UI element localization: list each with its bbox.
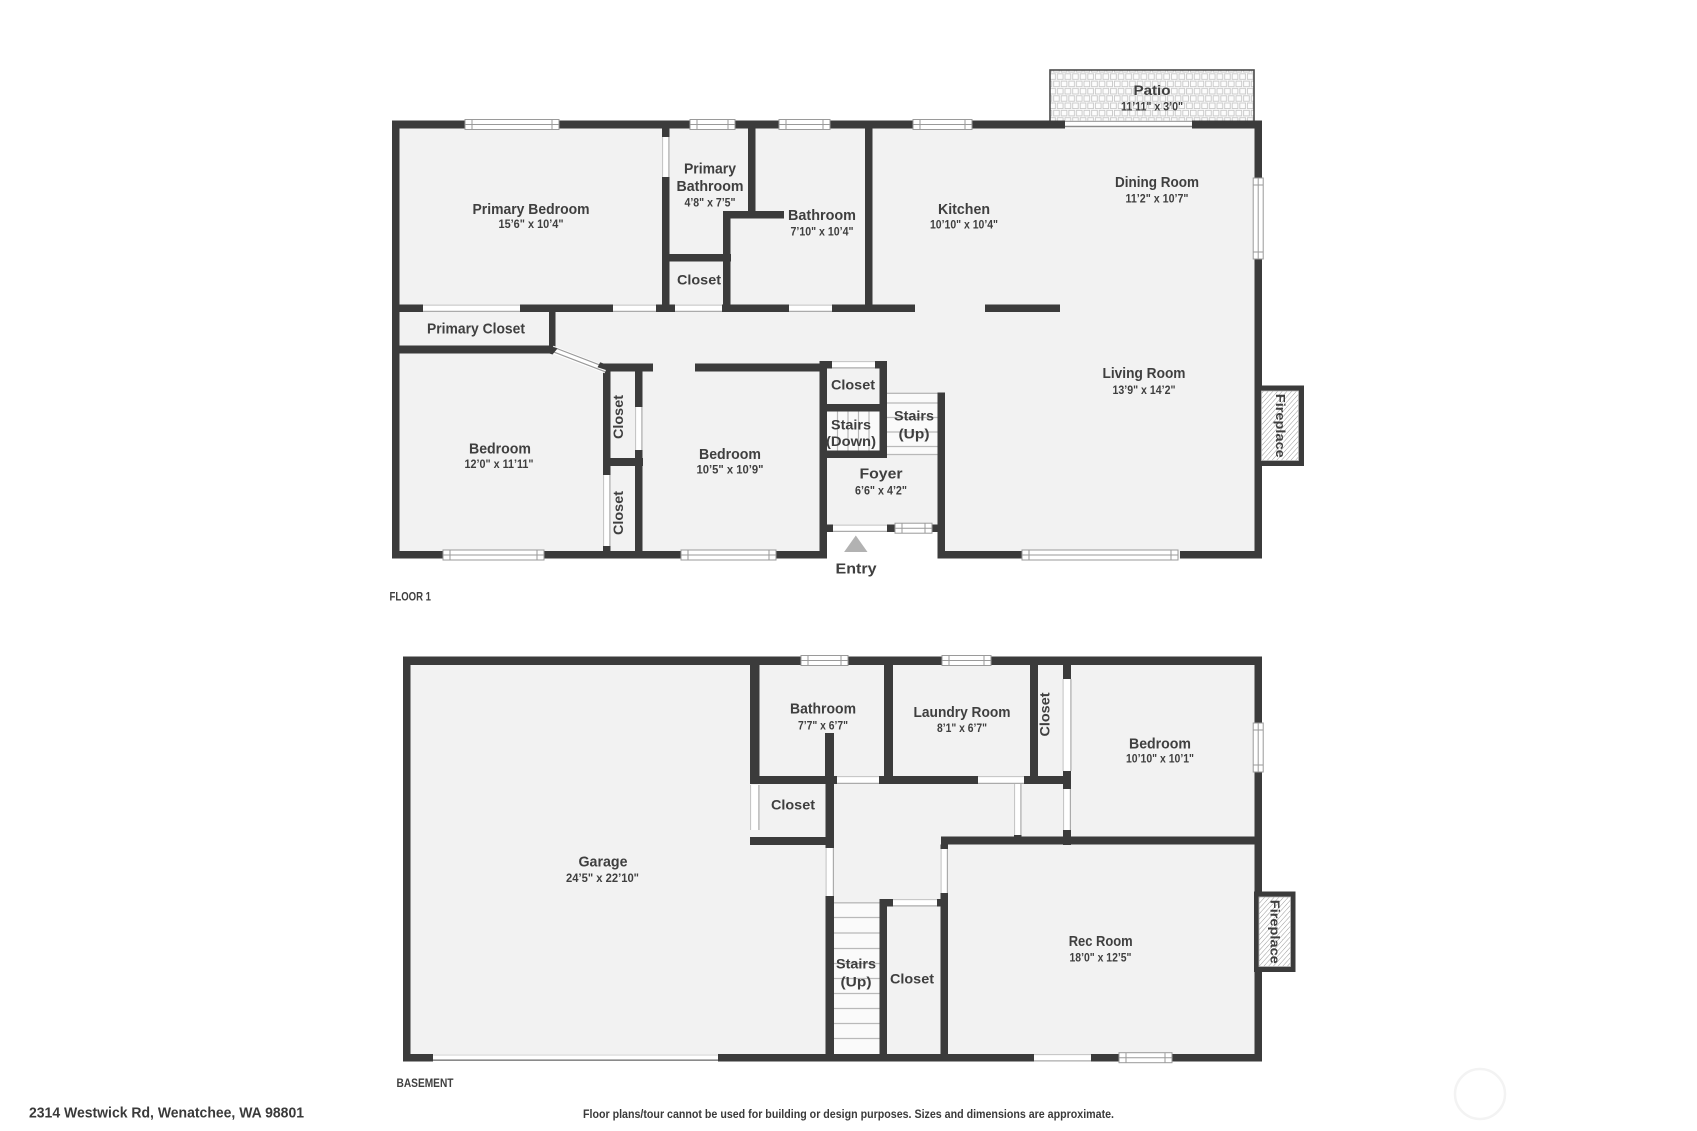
svg-text:11’11" x 3’0": 11’11" x 3’0" [1121, 102, 1183, 114]
svg-text:Primary Closet: Primary Closet [427, 321, 525, 338]
svg-text:12’0" x 11’11": 12’0" x 11’11" [465, 457, 534, 471]
svg-text:(Up): (Up) [841, 974, 872, 990]
svg-text:BASEMENT: BASEMENT [397, 1078, 454, 1090]
svg-text:Closet: Closet [831, 377, 875, 393]
svg-text:Stairs: Stairs [836, 956, 876, 972]
svg-text:Primary Bedroom: Primary Bedroom [473, 201, 590, 218]
svg-text:(Down): (Down) [826, 433, 876, 449]
svg-text:Closet: Closet [771, 797, 815, 813]
svg-text:Living Room: Living Room [1103, 365, 1186, 382]
svg-text:Garage: Garage [579, 854, 628, 871]
svg-text:24’5" x 22’10": 24’5" x 22’10" [566, 871, 639, 885]
svg-text:10’10" x 10’4": 10’10" x 10’4" [930, 218, 998, 232]
svg-text:7’10" x 10’4": 7’10" x 10’4" [791, 225, 854, 239]
svg-text:Rec Room: Rec Room [1069, 933, 1133, 950]
svg-text:10’5" x 10’9": 10’5" x 10’9" [697, 463, 764, 477]
svg-text:(Up): (Up) [899, 426, 930, 442]
svg-text:11’2" x 10’7": 11’2" x 10’7" [1126, 192, 1189, 206]
svg-text:Fireplace: Fireplace [1268, 900, 1283, 964]
svg-text:Closet: Closet [890, 971, 934, 987]
svg-text:10’10" x 10’1": 10’10" x 10’1" [1126, 752, 1194, 766]
svg-text:FLOOR 1: FLOOR 1 [390, 592, 432, 604]
svg-text:Bedroom: Bedroom [469, 441, 531, 458]
svg-text:Bedroom: Bedroom [699, 446, 761, 463]
svg-text:Closet: Closet [610, 395, 626, 439]
svg-text:Bathroom: Bathroom [677, 178, 744, 195]
svg-text:Patio: Patio [1134, 82, 1171, 98]
svg-text:Stairs: Stairs [894, 408, 934, 424]
svg-text:2314 Westwick Rd, Wenatchee, W: 2314 Westwick Rd, Wenatchee, WA 98801 [29, 1105, 304, 1122]
svg-text:Closet: Closet [1037, 692, 1053, 736]
svg-text:Stairs: Stairs [831, 417, 871, 433]
svg-text:Closet: Closet [677, 272, 721, 288]
svg-text:Closet: Closet [610, 491, 626, 535]
svg-text:7’7" x 6’7": 7’7" x 6’7" [798, 719, 848, 733]
svg-text:Kitchen: Kitchen [938, 201, 990, 218]
svg-text:Laundry Room: Laundry Room [914, 704, 1011, 721]
svg-text:6’6" x 4’2": 6’6" x 4’2" [855, 484, 907, 498]
svg-text:Bathroom: Bathroom [788, 207, 856, 224]
svg-text:Entry: Entry [836, 561, 878, 578]
svg-text:Dining Room: Dining Room [1115, 174, 1199, 191]
svg-text:Bedroom: Bedroom [1129, 736, 1191, 753]
svg-text:4’8" x 7’5": 4’8" x 7’5" [685, 196, 736, 210]
svg-text:8’1" x 6’7": 8’1" x 6’7" [937, 721, 987, 735]
svg-text:18’0" x 12’5": 18’0" x 12’5" [1070, 951, 1132, 965]
svg-text:Foyer: Foyer [860, 466, 903, 483]
svg-text:Primary: Primary [684, 161, 737, 178]
svg-text:13’9" x 14’2": 13’9" x 14’2" [1113, 383, 1176, 397]
svg-text:Bathroom: Bathroom [790, 701, 856, 718]
svg-text:Fireplace: Fireplace [1273, 394, 1288, 458]
svg-text:15’6" x 10’4": 15’6" x 10’4" [499, 217, 564, 231]
svg-text:Floor plans/tour cannot be use: Floor plans/tour cannot be used for buil… [583, 1109, 1114, 1121]
